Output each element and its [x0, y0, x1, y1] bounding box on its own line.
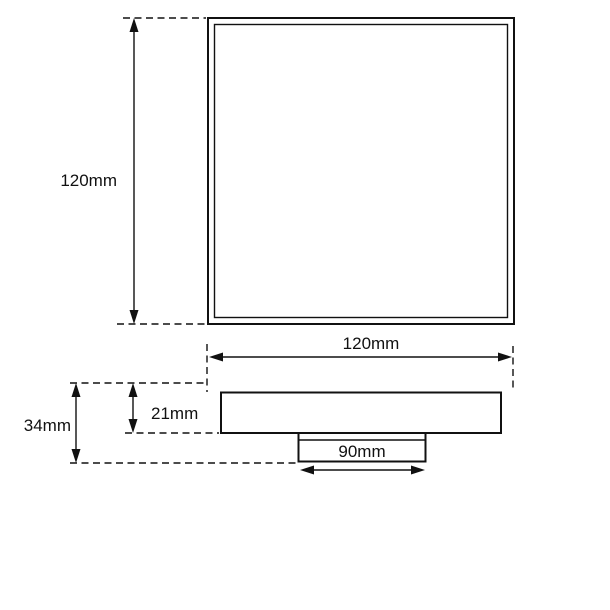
body-height-label: 21mm — [151, 404, 198, 423]
arrowhead-down — [130, 310, 139, 324]
dimension-drawing: 120mm 120mm 90mm — [0, 0, 610, 610]
body-height-dimension: 21mm — [129, 383, 199, 433]
overall-height-label: 34mm — [24, 416, 71, 435]
plan-view — [208, 18, 514, 324]
overall-height-dimension: 34mm — [24, 383, 81, 463]
arrowhead-down — [129, 419, 138, 433]
technical-drawing-canvas: 120mm 120mm 90mm — [0, 0, 610, 610]
arrowhead-left — [300, 466, 314, 475]
plan-outer-square — [208, 18, 514, 324]
side-view-reference-lines — [70, 383, 296, 463]
plan-height-label: 120mm — [60, 171, 117, 190]
plan-width-dimension: 120mm — [207, 334, 513, 392]
side-body-outline — [221, 393, 501, 434]
plan-height-dimension: 120mm — [60, 18, 206, 324]
arrowhead-up — [130, 18, 139, 32]
arrowhead-right — [411, 466, 425, 475]
arrowhead-right — [498, 353, 512, 362]
outlet-width-dimension — [300, 466, 425, 475]
arrowhead-up — [129, 383, 138, 397]
outlet-width-label: 90mm — [338, 442, 385, 461]
arrowhead-up — [72, 383, 81, 397]
arrowhead-down — [72, 449, 81, 463]
plan-width-label: 120mm — [343, 334, 400, 353]
side-view: 90mm — [221, 393, 501, 462]
plan-inner-square — [215, 25, 508, 318]
arrowhead-left — [209, 353, 223, 362]
